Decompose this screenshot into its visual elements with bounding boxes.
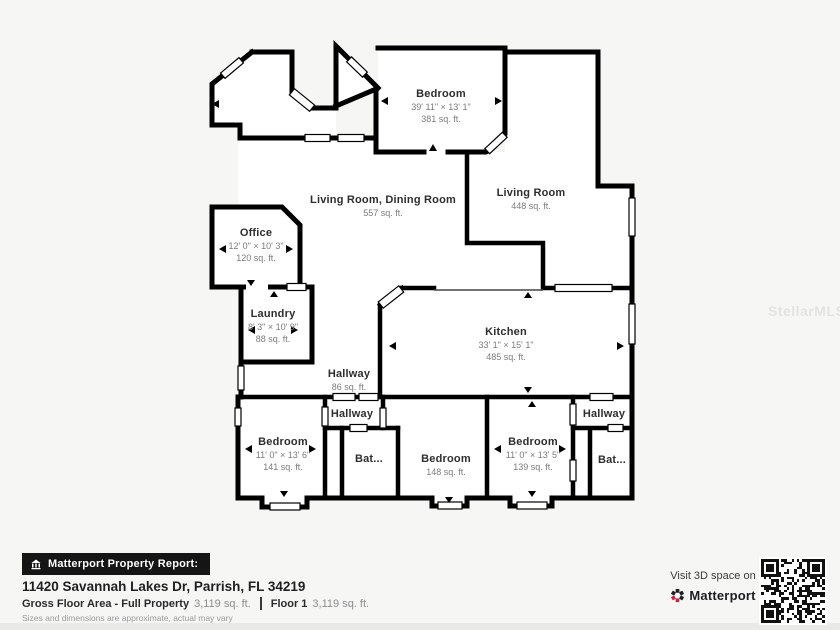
gross-floor-area-value: 3,119 sq. ft.: [194, 598, 251, 610]
room-label-hallway-main: Hallway 86 sq. ft.: [328, 368, 370, 393]
room-label-office: Office 12' 0" × 10' 3" 120 sq. ft.: [228, 227, 283, 264]
matterport-logo-icon: [670, 588, 685, 603]
room-name: Bedroom: [421, 453, 471, 466]
room-name: Bat...: [355, 453, 383, 466]
room-name: Living Room, Dining Room: [310, 194, 456, 207]
room-area: 120 sq. ft.: [228, 252, 283, 264]
room-label-living-dining: Living Room, Dining Room 557 sq. ft.: [310, 194, 456, 219]
room-label-laundry: Laundry 8' 3" × 10' 9" 88 sq. ft.: [248, 308, 298, 345]
qr-code: [759, 557, 827, 625]
room-area: 148 sq. ft.: [421, 466, 471, 478]
room-area: 141 sq. ft.: [256, 461, 310, 473]
room-area: 381 sq. ft.: [411, 113, 470, 125]
floor-label: Floor 1: [271, 598, 308, 610]
room-area: 139 sq. ft.: [506, 461, 560, 473]
room-name: Living Room: [497, 187, 566, 200]
visit-3d-label: Visit 3D space on: [668, 570, 758, 582]
room-name: Bat...: [598, 454, 626, 467]
room-dims: 33' 1" × 15' 1": [478, 339, 533, 351]
room-name: Kitchen: [478, 326, 533, 339]
room-dims: 11' 0" × 13' 6": [256, 449, 310, 461]
bottom-strip: [0, 623, 840, 630]
room-label-hallway-left: Hallway: [331, 408, 373, 421]
room-name: Bedroom: [256, 436, 310, 449]
room-label-bedroom-right: Bedroom 11' 0" × 13' 5" 139 sq. ft.: [506, 436, 560, 473]
room-area: 485 sq. ft.: [478, 351, 533, 363]
metrics-divider: [260, 597, 262, 610]
room-dims: 11' 0" × 13' 5": [506, 449, 560, 461]
room-label-living-room: Living Room 448 sq. ft.: [497, 187, 566, 212]
room-dims: 12' 0" × 10' 3": [228, 240, 283, 252]
room-name: Bedroom: [506, 436, 560, 449]
room-label-kitchen: Kitchen 33' 1" × 15' 1" 485 sq. ft.: [478, 326, 533, 363]
room-area: 86 sq. ft.: [328, 381, 370, 393]
room-name: Laundry: [248, 308, 298, 321]
room-label-hallway-right: Hallway: [583, 408, 625, 421]
room-dims: 8' 3" × 10' 9": [248, 321, 298, 333]
room-label-bedroom-middle: Bedroom 148 sq. ft.: [421, 453, 471, 478]
room-name: Bedroom: [411, 88, 470, 101]
report-badge-label: Matterport Property Report:: [48, 558, 198, 570]
property-report-page: { "plan": { "rooms": [ {"name": "Bedroom…: [0, 0, 840, 630]
watermark: StellarMLS: [768, 303, 840, 319]
building-icon: [30, 558, 42, 570]
floor-value: 3,119 sq. ft.: [312, 598, 369, 610]
room-area: 448 sq. ft.: [497, 200, 566, 212]
room-name: Hallway: [331, 408, 373, 421]
property-address: 11420 Savannah Lakes Dr, Parrish, FL 342…: [22, 579, 305, 594]
room-area: 88 sq. ft.: [248, 333, 298, 345]
report-badge: Matterport Property Report:: [22, 553, 210, 575]
room-name: Hallway: [328, 368, 370, 381]
matterport-brand: Matterport: [664, 588, 762, 603]
room-label-bath-left: Bat...: [355, 453, 383, 466]
room-name: Office: [228, 227, 283, 240]
brand-name: Matterport: [689, 588, 755, 603]
floor-area-metrics: Gross Floor Area - Full Property 3,119 s…: [22, 597, 369, 610]
gross-floor-area-label: Gross Floor Area - Full Property: [22, 598, 189, 610]
room-name: Hallway: [583, 408, 625, 421]
room-label-bedroom-top: Bedroom 39' 11" × 13' 1" 381 sq. ft.: [411, 88, 470, 125]
room-area: 557 sq. ft.: [310, 207, 456, 219]
room-label-bedroom-left: Bedroom 11' 0" × 13' 6" 141 sq. ft.: [256, 436, 310, 473]
room-label-bath-right: Bat...: [598, 454, 626, 467]
room-dims: 39' 11" × 13' 1": [411, 101, 470, 113]
disclaimer-text: Sizes and dimensions are approximate, ac…: [22, 613, 233, 623]
